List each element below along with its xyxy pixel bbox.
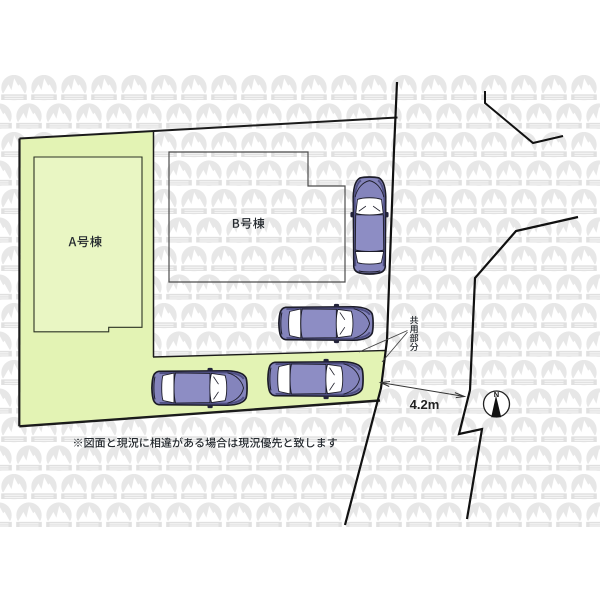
- svg-text:4.2m: 4.2m: [410, 397, 440, 412]
